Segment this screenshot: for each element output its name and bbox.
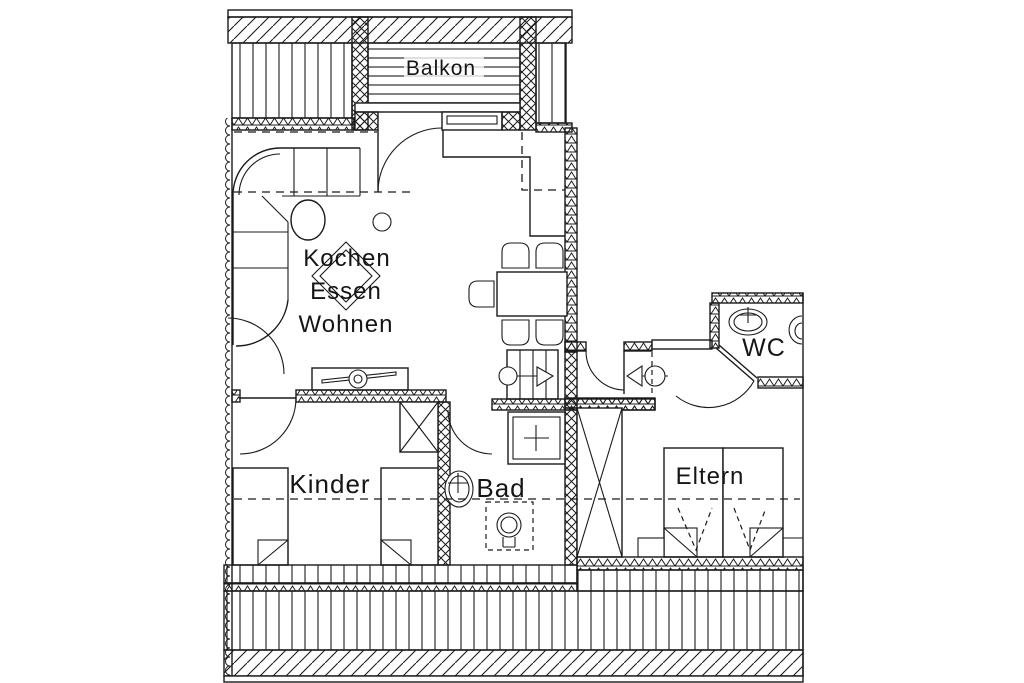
kitchen-window [442, 112, 502, 130]
wc-top-wall [712, 293, 803, 303]
room-label-balkon: Balkon [406, 57, 476, 80]
sideboard-tv [312, 368, 408, 390]
balcony-sill [355, 103, 520, 112]
wc-bottom-wall [758, 377, 803, 388]
wall-under-left-roof [232, 118, 354, 130]
outer-edge-bottom [224, 676, 803, 682]
nightstand [638, 538, 664, 557]
room-label-living-1: Kochen [303, 245, 390, 272]
stair-direction-circle [645, 366, 665, 386]
roof-right [536, 43, 566, 123]
corridor-top-wall-a [565, 342, 586, 351]
bad-toilet [486, 502, 533, 550]
wc-sink [729, 307, 767, 335]
stair-shaft [577, 408, 622, 557]
roof-strip-bottom [224, 557, 803, 682]
room-bad: Bad [445, 410, 565, 550]
corridor-top-wall-b [624, 342, 652, 351]
room-label-living-2: Essen [310, 278, 382, 305]
dining-set [469, 243, 567, 345]
chair [502, 243, 529, 268]
shower [508, 412, 565, 464]
room-label-eltern: Eltern [676, 463, 745, 490]
balcony-wall-right [520, 17, 536, 130]
dining-table [497, 272, 567, 316]
bad-sink [445, 471, 473, 507]
south-window-band [224, 565, 577, 583]
south-wall-east [577, 557, 803, 570]
kitchen-counter [443, 130, 565, 236]
roof-left [232, 43, 352, 118]
stair-direction-circle [499, 367, 517, 385]
balcony-door-swing [378, 128, 442, 192]
wc-toilet [789, 316, 802, 344]
outer-edge-top [228, 10, 572, 17]
wall-pier-left-of-balcony-door [355, 112, 378, 130]
room-kinder: Kinder [233, 398, 438, 565]
kitchen-upper-cabinets-dashed [522, 132, 565, 190]
living-right-wall [565, 128, 577, 352]
bad-shaft-wall [565, 408, 577, 565]
wall-pier-right-of-window [502, 112, 520, 130]
room-label-wc: WC [742, 334, 786, 362]
chair [469, 281, 494, 307]
wc-left-wall [710, 303, 719, 348]
chair [536, 243, 563, 268]
wc-door-swing [676, 381, 754, 408]
corridor-parapet [652, 340, 712, 349]
coffee-table [291, 200, 325, 240]
room-label-kinder: Kinder [289, 469, 370, 499]
stairs-down [499, 350, 558, 399]
room-living: Kochen Essen Wohnen [228, 128, 577, 399]
roof-south-upper-east [577, 570, 803, 591]
stool [373, 213, 391, 231]
floor-plan-page: Balkon [0, 0, 1024, 683]
south-wall-hatch [224, 583, 577, 591]
kinder-shaft [400, 402, 438, 452]
entry-door-swing [586, 351, 624, 390]
kinder-top-wall-b [296, 390, 446, 402]
stair-direction-arrow [627, 366, 642, 386]
chair [536, 320, 563, 345]
kinder-door-swing [240, 398, 296, 454]
chair [502, 320, 529, 345]
roof-hatch-band-bottom [224, 650, 803, 676]
room-wc: WC [676, 293, 803, 408]
bad-door-swing [448, 410, 492, 454]
floor-plan-drawing: Balkon [0, 0, 1024, 683]
kinder-bed-left [233, 468, 288, 565]
room-eltern: Eltern [638, 448, 803, 557]
roof-south [224, 591, 803, 650]
kinder-bed-right [381, 468, 438, 565]
kinder-top-wall-a [232, 390, 240, 402]
room-label-living-3: Wohnen [299, 311, 394, 338]
